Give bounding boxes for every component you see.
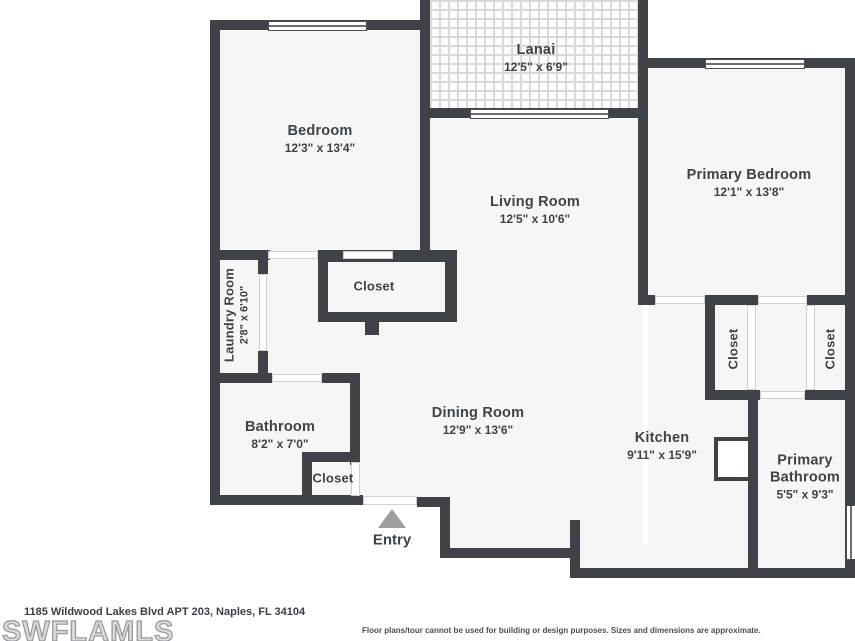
sliding-door-lanai: [470, 109, 609, 119]
floor-area: [425, 113, 643, 553]
room-name: Closet: [313, 471, 354, 486]
door-opening-primary-bedroom: [655, 296, 705, 304]
room-dimensions: 2'8" x 6'10": [239, 268, 251, 362]
room-dimensions: 12'5" x 6'9": [504, 60, 568, 74]
window-primary-bathroom: [846, 505, 855, 560]
room-label-primary-bedroom: Primary Bedroom 12'1" x 13'8": [687, 167, 812, 199]
wall-bedroom-closet-bottom: [318, 312, 457, 322]
room-name: Lanai: [504, 42, 568, 58]
room-name: Dining Room: [432, 405, 524, 421]
wall-closet-left-side: [705, 295, 715, 400]
room-label-lanai: Lanai 12'5" x 6'9": [504, 42, 568, 74]
door-opening-closet-left: [747, 305, 756, 390]
mls-logo: SWFLAMLS: [2, 616, 174, 641]
wall-closets-bottom-2: [805, 390, 855, 400]
wall-dining-bottom: [440, 548, 580, 558]
wall-entry-vertical: [440, 500, 450, 558]
entry-label: Entry: [373, 532, 411, 549]
room-name: Laundry Room: [222, 268, 237, 362]
room-dimensions: 8'2" x 7'0": [245, 437, 315, 451]
room-dimensions: 9'11" x 15'9": [627, 448, 697, 462]
wall-living-primary-divider: [638, 58, 648, 305]
room-label-entry-closet: Closet: [313, 471, 354, 486]
wall-bottom-left-outer: [210, 495, 363, 505]
room-label-bedroom: Bedroom 12'3" x 13'4": [285, 123, 355, 155]
room-label-bedroom-closet: Closet: [354, 279, 395, 294]
room-label-closet-left: Closet: [726, 329, 741, 370]
door-opening-primary-bathroom: [760, 391, 805, 399]
room-name: Kitchen: [627, 430, 697, 446]
room-label-living-room: Living Room 12'5" x 10'6": [490, 194, 580, 226]
entry-arrow-icon: [378, 509, 406, 528]
room-label-primary-bathroom: Primary Bathroom 5'5" x 9'3": [755, 452, 855, 501]
room-dimensions: 12'9" x 13'6": [432, 423, 524, 437]
room-name: Primary Bedroom: [687, 167, 812, 183]
disclaimer-text: Floor plans/tour cannot be used for buil…: [362, 626, 761, 635]
room-label-bathroom: Bathroom 8'2" x 7'0": [245, 419, 315, 451]
door-opening-bedroom: [268, 251, 318, 259]
window-bedroom: [268, 21, 367, 31]
room-dimensions: 12'1" x 13'8": [687, 185, 812, 199]
wall-laundry-stub-top: [258, 250, 268, 274]
kitchen-fixture: [714, 437, 752, 481]
room-name: Closet: [354, 279, 395, 294]
room-name: Primary Bathroom: [755, 452, 855, 485]
door-opening-closet-hall: [758, 296, 807, 304]
wall-entry-top: [417, 497, 450, 507]
door-opening-closet-right: [806, 305, 815, 390]
room-name: Bathroom: [245, 419, 315, 435]
wall-bedroom-right: [420, 0, 430, 260]
room-label-laundry-room: Laundry Room 2'8" x 6'10": [222, 268, 251, 362]
room-dimensions: 5'5" x 9'3": [755, 488, 855, 502]
room-name: Closet: [823, 329, 838, 370]
wall-closets-bottom-1: [705, 390, 760, 400]
room-dimensions: 12'5" x 10'6": [490, 212, 580, 226]
room-dimensions: 12'3" x 13'4": [285, 141, 355, 155]
room-name: Living Room: [490, 194, 580, 210]
wall-left-outer: [210, 20, 220, 505]
door-opening-bedroom-closet: [343, 251, 393, 259]
wall-closets-top-1: [638, 295, 655, 305]
window-primary-bedroom: [705, 59, 805, 69]
room-name: Closet: [726, 329, 741, 370]
wall-closets-top-3: [807, 295, 855, 305]
room-name: Bedroom: [285, 123, 355, 139]
wall-hall-stub: [365, 322, 379, 335]
floor-plan-page: Lanai 12'5" x 6'9" Bedroom 12'3" x 13'4"…: [0, 0, 855, 641]
room-label-closet-right: Closet: [823, 329, 838, 370]
door-opening-laundry: [259, 274, 267, 351]
door-opening-entry: [363, 496, 417, 505]
door-opening-bathroom: [272, 374, 322, 382]
wall-entry-closet-left: [302, 452, 312, 505]
room-label-dining-room: Dining Room 12'9" x 13'6": [432, 405, 524, 437]
exterior-mask: [410, 505, 440, 553]
wall-bottom-right-outer: [577, 568, 855, 578]
wall-bathroom-top-1: [210, 373, 272, 383]
room-label-kitchen: Kitchen 9'11" x 15'9": [627, 430, 697, 462]
